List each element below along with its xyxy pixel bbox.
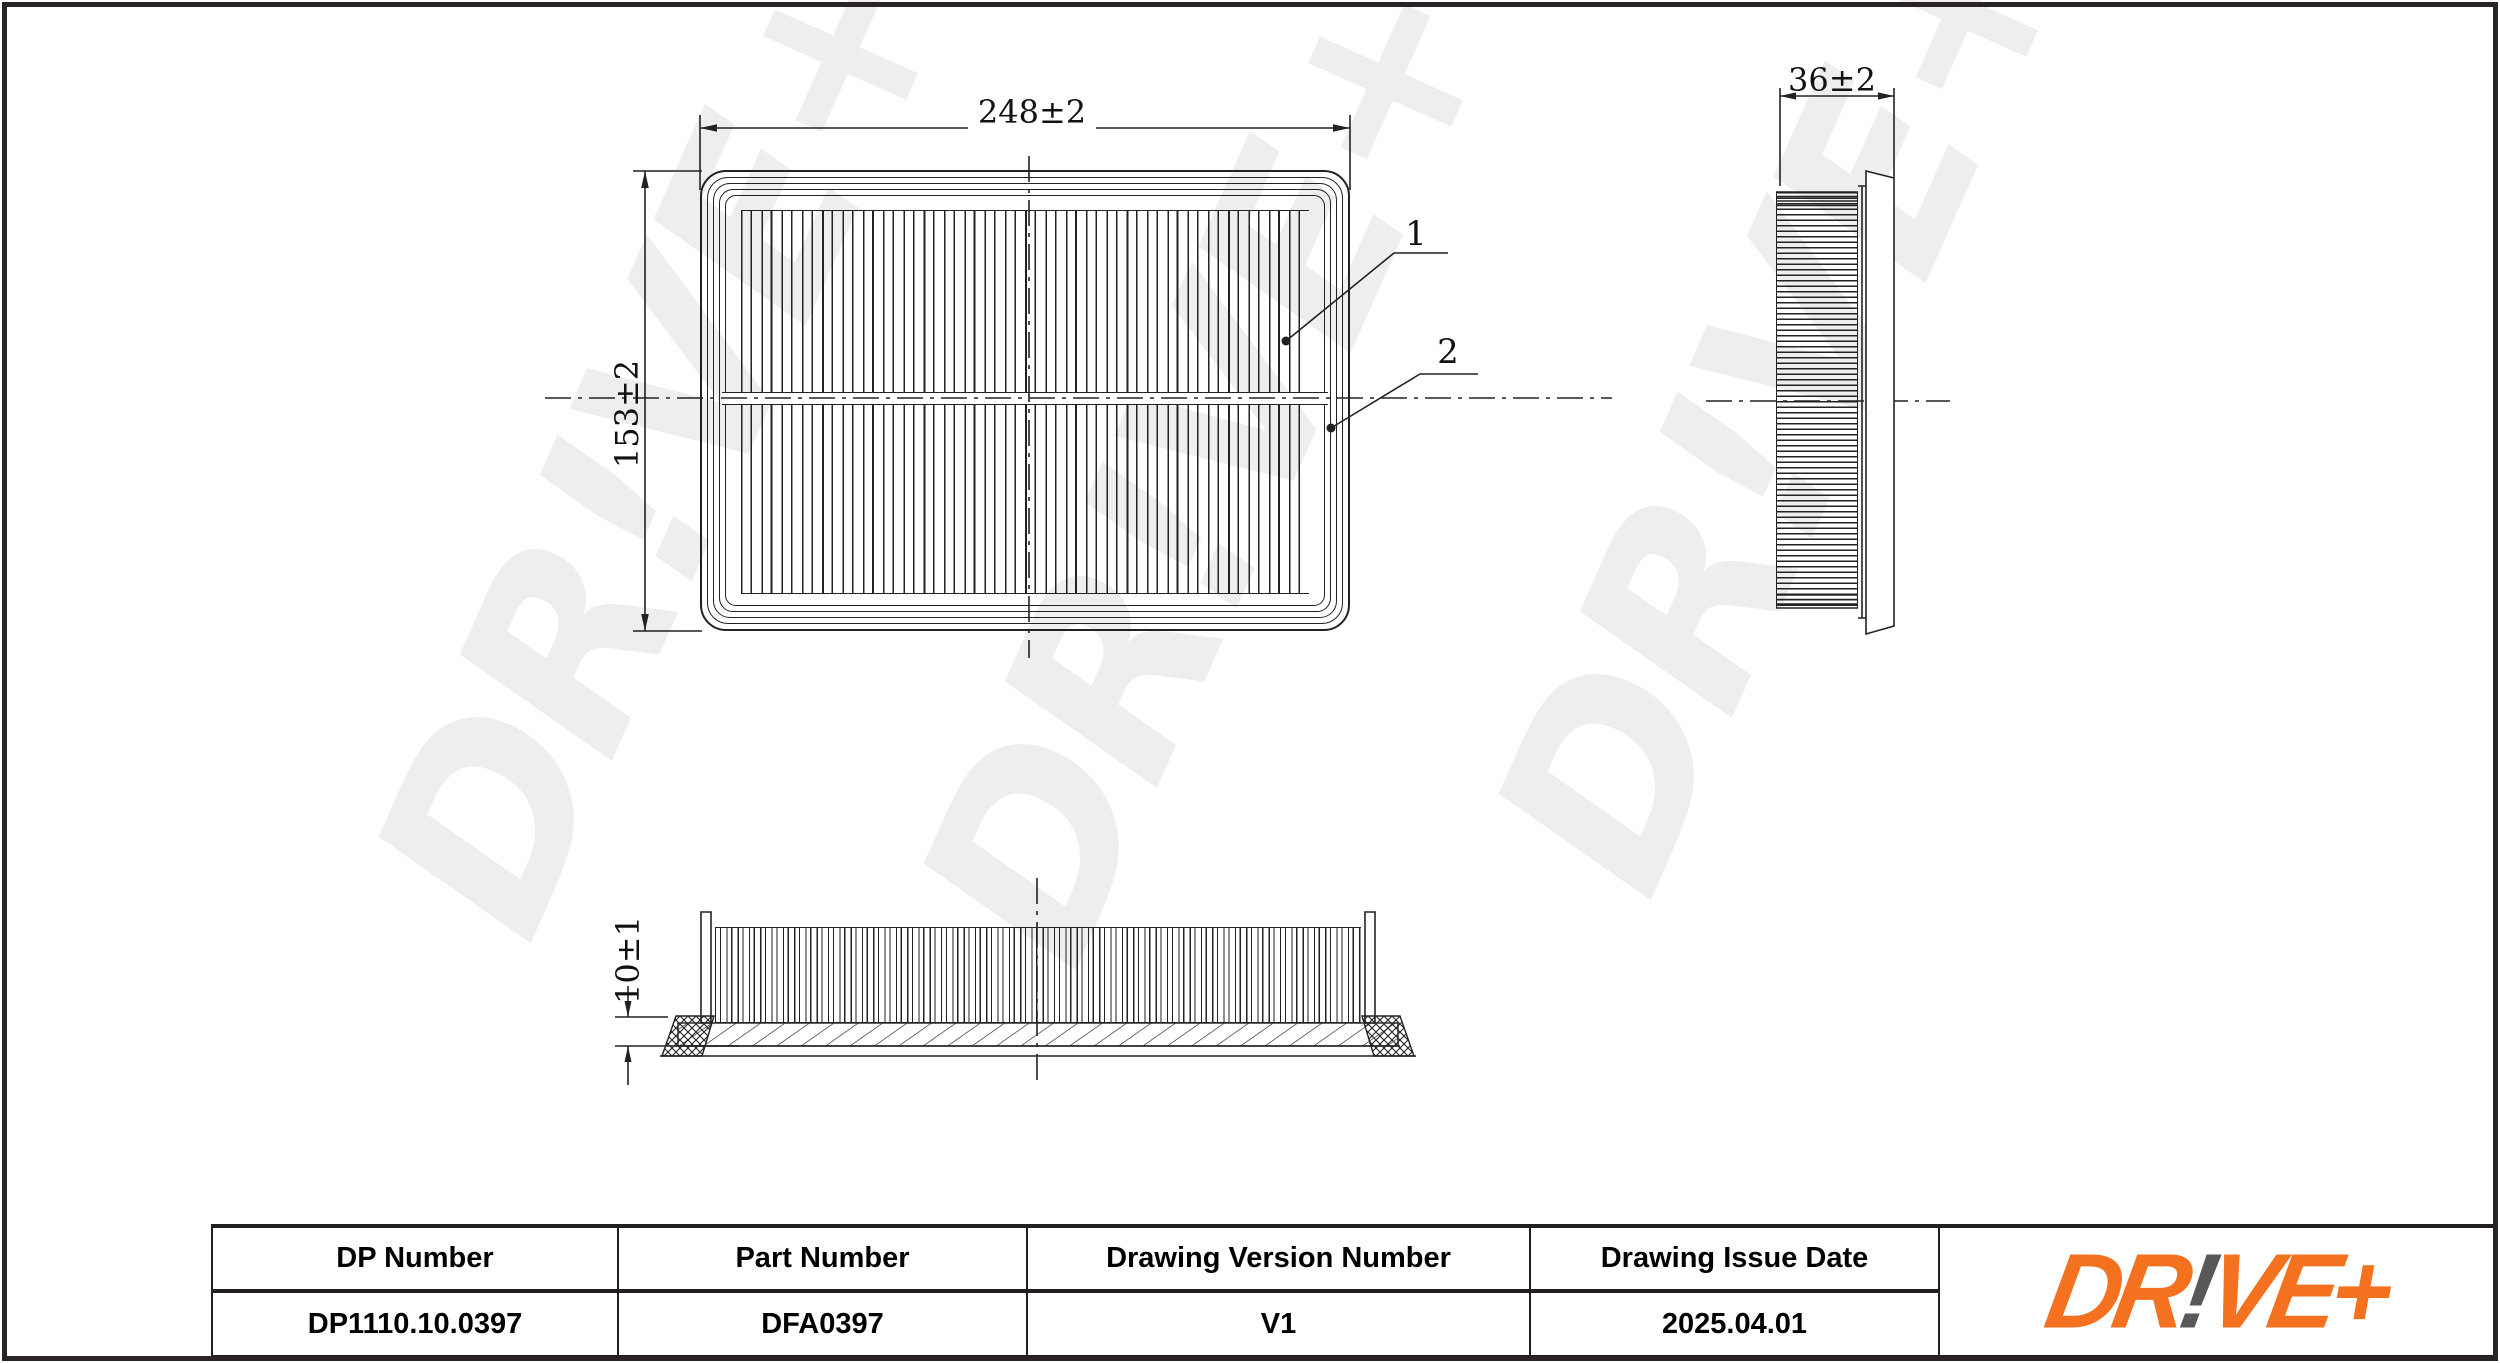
dimension-label-height: 153±2 (608, 360, 646, 468)
dimension-label-gasket-height: 10±1 (609, 916, 647, 1004)
logo-cell: DR!VE+ (1938, 1228, 2493, 1355)
dimension-label-depth: 36±2 (1788, 61, 1876, 99)
top-view-center-support-band (722, 392, 1328, 405)
callout-1-label: 1 (1405, 214, 1427, 254)
table-value-part-number: DFA0397 (617, 1293, 1026, 1355)
table-value-issue-date: 2025.04.01 (1529, 1293, 1938, 1355)
dimension-label-width: 248±2 (978, 93, 1086, 131)
table-header-part-number: Part Number (617, 1228, 1026, 1293)
front-view-filter-pleats (715, 927, 1361, 1023)
logo-part-dr: DR (2038, 1232, 2193, 1350)
driveplus-logo: DR!VE+ (2039, 1238, 2394, 1344)
drawing-sheet: DR!VE+ DR!VE+ DR!VE+ (0, 0, 2500, 1363)
callout-2-label: 2 (1437, 332, 1459, 372)
table-header-issue-date: Drawing Issue Date (1529, 1228, 1938, 1293)
logo-part-veplus: VE+ (2199, 1232, 2395, 1350)
table-header-dp-number: DP Number (213, 1228, 617, 1293)
side-view-filter-pleats (1776, 192, 1858, 608)
table-value-drawing-version: V1 (1026, 1293, 1529, 1355)
title-block-table: DP Number Part Number Drawing Version Nu… (211, 1224, 2493, 1359)
table-value-dp-number: DP1110.10.0397 (213, 1293, 617, 1355)
table-header-drawing-version: Drawing Version Number (1026, 1228, 1529, 1293)
